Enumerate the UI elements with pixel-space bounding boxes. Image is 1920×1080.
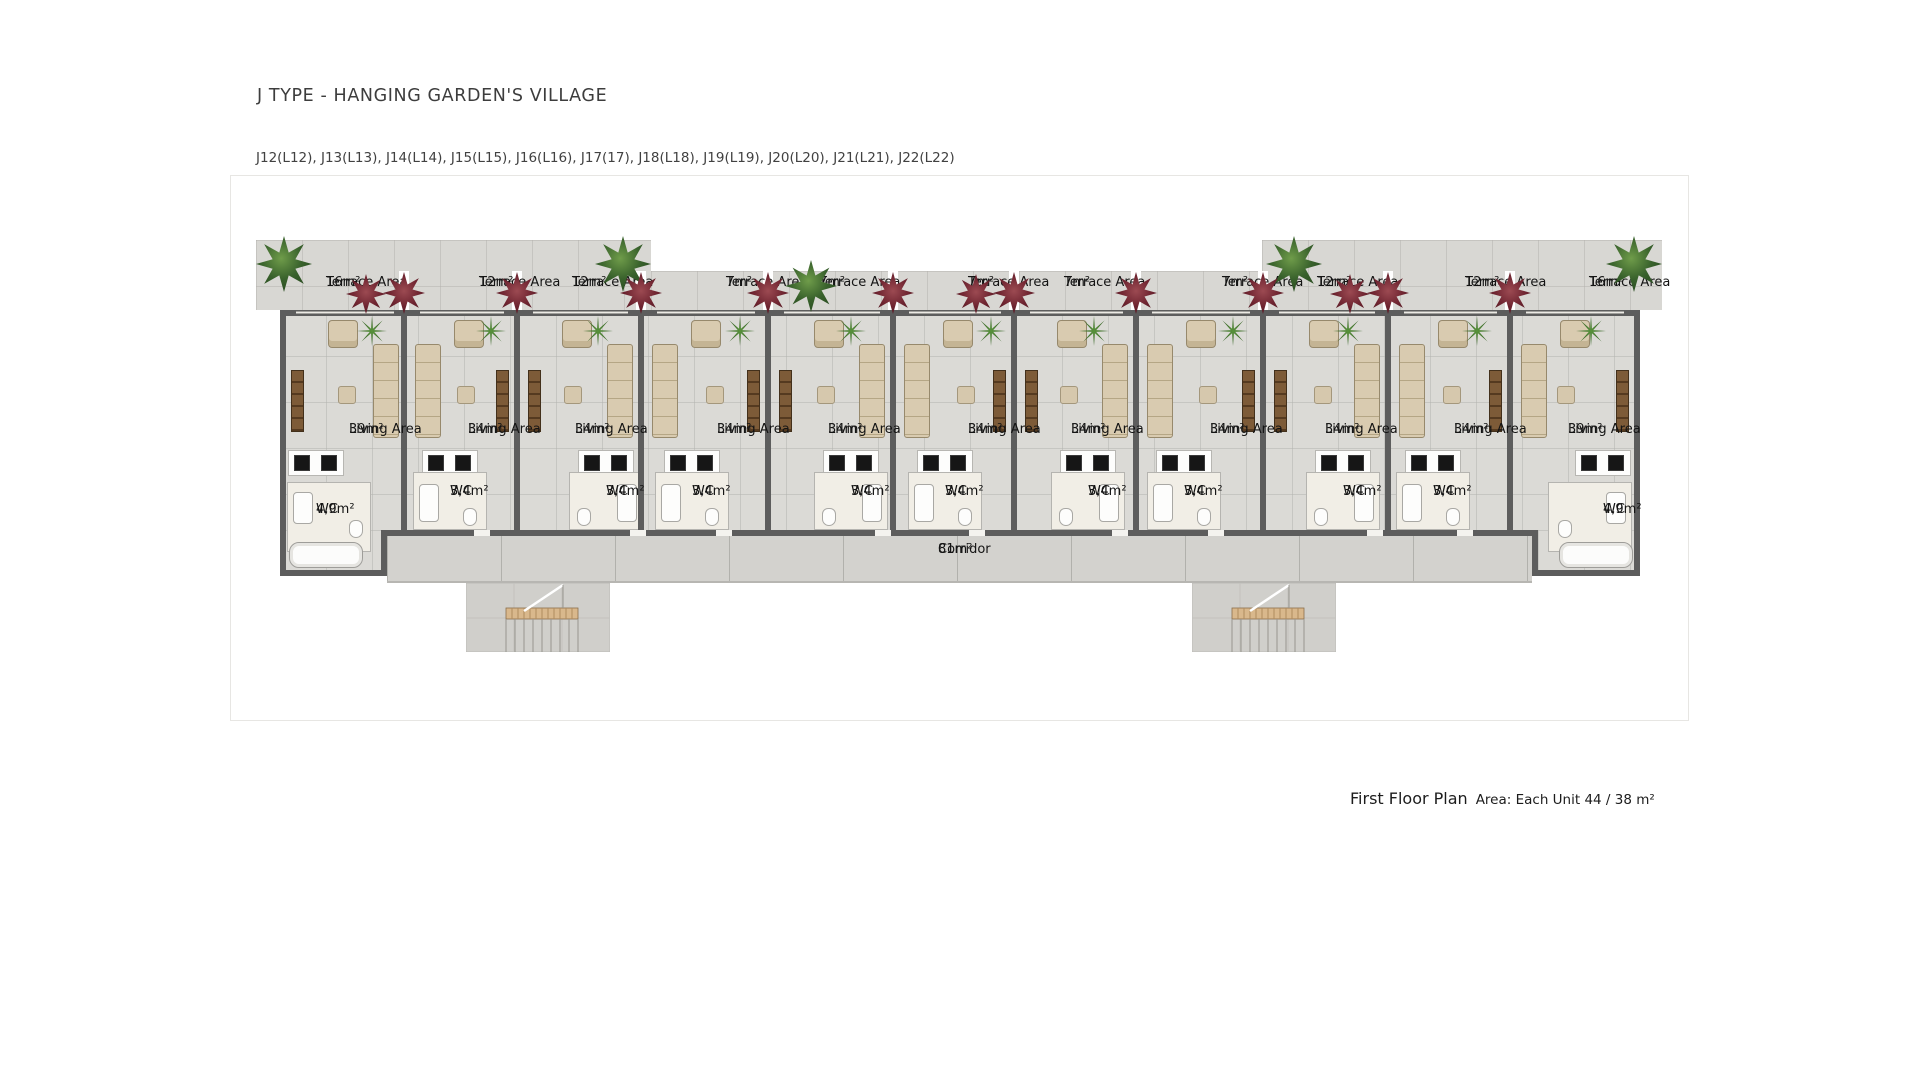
stove-icon [950, 455, 966, 471]
plan-caption-detail: Area: Each Unit 44 / 38 m² [1476, 792, 1655, 808]
terrace-window [1526, 311, 1624, 314]
red-plant-icon [346, 274, 386, 314]
wc-label-text: WC [1433, 484, 1455, 500]
corridor-door-gap [1112, 530, 1128, 536]
toilet [1446, 508, 1460, 526]
corridor-door-gap [875, 530, 891, 536]
terrace-window [533, 311, 628, 314]
stairwell-left [466, 583, 610, 652]
armchair [1560, 320, 1590, 348]
sofa [904, 344, 930, 438]
left-annex-side-wall [381, 530, 387, 576]
armchair [454, 320, 484, 348]
stove-icon [455, 455, 471, 471]
shower [1402, 484, 1422, 522]
red-plant-icon [872, 272, 914, 314]
wc-label-text: WC [450, 484, 472, 500]
stove-icon [1321, 455, 1337, 471]
plant-icon [785, 260, 837, 312]
sofa [1147, 344, 1173, 438]
green-plant-icon [725, 316, 755, 346]
armchair [328, 320, 358, 348]
toilet [705, 508, 719, 526]
red-plant-icon [383, 272, 425, 314]
unit-divider-wall [1260, 310, 1266, 530]
red-plant-icon [1489, 272, 1531, 314]
living-area-label-text: Living Area [717, 422, 790, 438]
unit-divider-wall [765, 310, 771, 530]
living-area-label-text: Living Area [1071, 422, 1144, 438]
unit-list: J12(L12), J13(L13), J14(L14), J15(L15), … [256, 150, 955, 166]
unit-divider-wall [1011, 310, 1017, 530]
red-plant-icon [1115, 272, 1157, 314]
armchair [691, 320, 721, 348]
red-plant-icon [956, 274, 996, 314]
wc-label-text: WC [316, 502, 338, 518]
stove-icon [829, 455, 845, 471]
toilet [958, 508, 972, 526]
corridor-door-gap [1457, 530, 1473, 536]
terrace-window [657, 311, 755, 314]
stove-icon [321, 455, 337, 471]
corridor-top-wall [387, 530, 1532, 536]
unit-divider-wall [401, 310, 407, 530]
green-plant-icon [1333, 316, 1363, 346]
terrace-window [296, 311, 394, 314]
left-wall [280, 310, 286, 576]
plan-caption-title: First Floor Plan [1350, 789, 1468, 808]
armchair [814, 320, 844, 348]
living-area-label-text: Living Area [468, 422, 541, 438]
living-area-label-text: Living Area [968, 422, 1041, 438]
toilet [1558, 520, 1572, 538]
green-plant-icon [583, 316, 613, 346]
toilet [1059, 508, 1073, 526]
toilet [1314, 508, 1328, 526]
unit-divider-wall [1385, 310, 1391, 530]
floor-plan-panel: 81m² Corridor 16m²Terrace Area39m²Living… [230, 175, 1689, 721]
floor-plan-sheet: J TYPE - HANGING GARDEN'S VILLAGE J12(L1… [0, 0, 1920, 1080]
wc-label-text: WC [606, 484, 628, 500]
red-plant-icon [747, 272, 789, 314]
stove-icon [1162, 455, 1178, 471]
armchair [943, 320, 973, 348]
living-area-label-text: Living Area [1210, 422, 1283, 438]
coffee-table [1314, 386, 1332, 404]
living-area-label-text: Living Area [828, 422, 901, 438]
wc-label-text: WC [945, 484, 967, 500]
stove-icon [1581, 455, 1597, 471]
corridor-door-gap [1208, 530, 1224, 536]
red-plant-icon [1242, 272, 1284, 314]
right-wall [1634, 310, 1640, 576]
armchair [1057, 320, 1087, 348]
wc-label-text: WC [692, 484, 714, 500]
green-plant-icon [476, 316, 506, 346]
green-plant-icon [1218, 316, 1248, 346]
coffee-table [706, 386, 724, 404]
stove-icon [1411, 455, 1427, 471]
right-annex-side-wall [1532, 530, 1538, 576]
wc-label-text: WC [851, 484, 873, 500]
toilet [463, 508, 477, 526]
corridor-door-gap [969, 530, 985, 536]
terrace-window [1404, 311, 1497, 314]
toilet [349, 520, 363, 538]
toilet [1197, 508, 1211, 526]
bathtub-icon [1559, 542, 1633, 568]
armchair [1186, 320, 1216, 348]
shower [914, 484, 934, 522]
plan-caption: First Floor Plan Area: Each Unit 44 / 38… [1350, 789, 1655, 808]
coffee-table [564, 386, 582, 404]
corridor-door-gap [1367, 530, 1383, 536]
stove-icon [611, 455, 627, 471]
living-area-label-text: Living Area [349, 422, 422, 438]
stove-icon [1093, 455, 1109, 471]
armchair [562, 320, 592, 348]
corridor-door-gap [716, 530, 732, 536]
living-area-label-text: Living Area [1568, 422, 1641, 438]
red-plant-icon [620, 272, 662, 314]
coffee-table [457, 386, 475, 404]
wc-label-text: WC [1343, 484, 1365, 500]
stove-icon [1438, 455, 1454, 471]
red-plant-icon [496, 272, 538, 314]
wc-label-text: WC [1088, 484, 1110, 500]
armchair [1438, 320, 1468, 348]
terrace-window [784, 311, 880, 314]
red-plant-icon [1367, 272, 1409, 314]
stove-icon [428, 455, 444, 471]
sofa [652, 344, 678, 438]
coffee-table [1443, 386, 1461, 404]
stove-icon [923, 455, 939, 471]
units-layer: 16m²Terrace Area39m²Living Area4,9m²WC12… [231, 176, 1688, 720]
living-area-label-text: Living Area [575, 422, 648, 438]
shower [661, 484, 681, 522]
green-plant-icon [976, 316, 1006, 346]
stove-icon [856, 455, 872, 471]
shower [293, 492, 313, 524]
coffee-table [957, 386, 975, 404]
terrace-window [1279, 311, 1375, 314]
page-title: J TYPE - HANGING GARDEN'S VILLAGE [257, 86, 607, 106]
stove-icon [294, 455, 310, 471]
green-plant-icon [357, 316, 387, 346]
unit-divider-wall [1507, 310, 1513, 530]
stove-icon [697, 455, 713, 471]
unit-divider-wall [1133, 310, 1139, 530]
left-annex-bottom-wall [280, 570, 387, 576]
wardrobe [291, 370, 304, 432]
shower [419, 484, 439, 522]
coffee-table [1199, 386, 1217, 404]
green-plant-icon [836, 316, 866, 346]
stove-icon [670, 455, 686, 471]
coffee-table [338, 386, 356, 404]
terrace-window [420, 311, 504, 314]
toilet [577, 508, 591, 526]
green-plant-icon [1462, 316, 1492, 346]
green-plant-icon [1576, 316, 1606, 346]
stove-icon [1608, 455, 1624, 471]
sofa [1399, 344, 1425, 438]
plant-icon [1606, 236, 1662, 292]
green-plant-icon [1079, 316, 1109, 346]
corridor-door-gap [474, 530, 490, 536]
coffee-table [1060, 386, 1078, 404]
stairwell-right [1192, 583, 1336, 652]
stove-icon [1189, 455, 1205, 471]
wc-label-text: WC [1184, 484, 1206, 500]
toilet [822, 508, 836, 526]
stove-icon [584, 455, 600, 471]
red-plant-icon [993, 272, 1035, 314]
wc-label-text: WC [1603, 502, 1625, 518]
unit-divider-wall [514, 310, 520, 530]
armchair [1309, 320, 1339, 348]
shower [1153, 484, 1173, 522]
terrace-label-text: Terrace Area [1589, 275, 1670, 291]
terrace-window [1030, 311, 1123, 314]
stove-icon [1348, 455, 1364, 471]
corridor-text: Corridor [938, 542, 991, 558]
living-area-label-text: Living Area [1454, 422, 1527, 438]
coffee-table [1557, 386, 1575, 404]
red-plant-icon [1330, 274, 1370, 314]
coffee-table [817, 386, 835, 404]
terrace-window [1152, 311, 1250, 314]
right-annex-bottom-wall [1534, 570, 1640, 576]
stove-icon [1066, 455, 1082, 471]
corridor-door-gap [630, 530, 646, 536]
terrace-window [909, 311, 1001, 314]
living-area-label-text: Living Area [1325, 422, 1398, 438]
unit-divider-wall [890, 310, 896, 530]
bathtub-icon [289, 542, 363, 568]
plant-icon [256, 236, 312, 292]
